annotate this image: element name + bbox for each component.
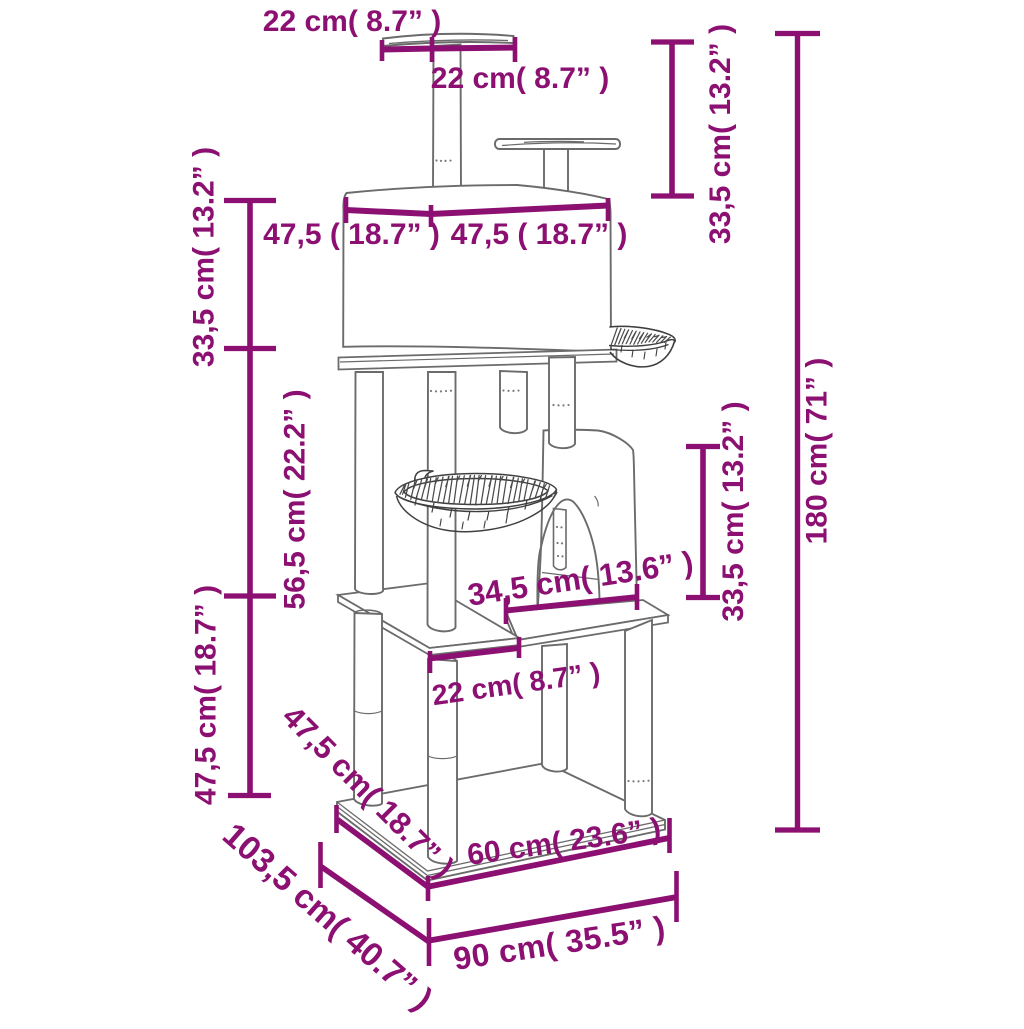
- svg-text:22 cm( 8.7” ): 22 cm( 8.7” ): [263, 5, 441, 38]
- svg-text:47,5 cm( 18.7” ): 47,5 cm( 18.7” ): [190, 585, 223, 805]
- svg-text:180 cm( 71” ): 180 cm( 71” ): [801, 358, 834, 545]
- svg-text:33,5 cm( 13.2” ): 33,5 cm( 13.2” ): [717, 401, 750, 621]
- svg-text:47,5 ( 18.7” ): 47,5 ( 18.7” ): [451, 218, 628, 251]
- svg-text:33,5 cm( 13.2” ): 33,5 cm( 13.2” ): [704, 24, 737, 244]
- svg-text:56,5 cm( 22.2” ): 56,5 cm( 22.2” ): [279, 389, 312, 609]
- svg-text:33,5 cm( 13.2” ): 33,5 cm( 13.2” ): [188, 147, 221, 367]
- svg-text:47,5 ( 18.7” ): 47,5 ( 18.7” ): [263, 218, 440, 251]
- svg-text:22 cm( 8.7” ): 22 cm( 8.7” ): [431, 62, 609, 95]
